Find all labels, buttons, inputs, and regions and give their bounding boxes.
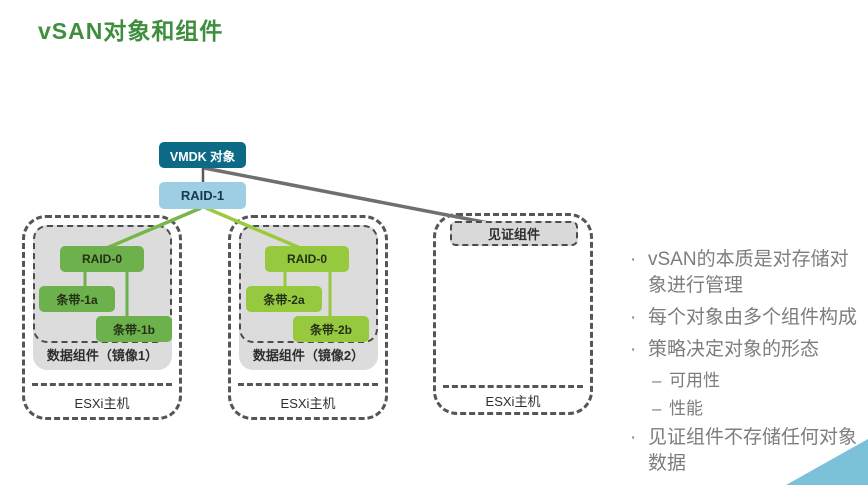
host-divider xyxy=(443,385,583,388)
slide: vSAN对象和组件 VMDK 对象 RAID-1 ESXi主机 数据组件（镜像1… xyxy=(0,0,868,485)
bullet-text: vSAN的本质是对存储对象进行管理 xyxy=(648,247,860,299)
bullet-text: 每个对象由多个组件构成 xyxy=(648,305,857,331)
list-item: · vSAN的本质是对存储对象进行管理 xyxy=(630,247,860,299)
bullet-text: 可用性 xyxy=(669,369,720,393)
bullet-marker: · xyxy=(630,337,648,363)
stripe-1a-node: 条带-1a xyxy=(39,286,115,312)
stripe-2a-node: 条带-2a xyxy=(246,286,322,312)
list-item: · 每个对象由多个组件构成 xyxy=(630,305,860,331)
stripe-2b-node: 条带-2b xyxy=(293,316,369,342)
dash-marker: – xyxy=(652,369,669,393)
raid0-node-mirror-2: RAID-0 xyxy=(265,246,349,272)
vmdk-object-node: VMDK 对象 xyxy=(159,142,246,168)
mirror-2-label: 数据组件（镜像2） xyxy=(239,345,378,364)
stripe-1b-node: 条带-1b xyxy=(96,316,172,342)
page-title: vSAN对象和组件 xyxy=(38,12,223,46)
host-divider xyxy=(238,383,378,386)
bullet-marker: · xyxy=(630,425,648,477)
esxi-host-label: ESXi主机 xyxy=(436,391,590,410)
triangle-shape xyxy=(786,439,868,485)
raid0-node-mirror-1: RAID-0 xyxy=(60,246,144,272)
esxi-host-label: ESXi主机 xyxy=(231,393,385,412)
dash-marker: – xyxy=(652,397,669,421)
raid1-node: RAID-1 xyxy=(159,182,246,209)
bullet-marker: · xyxy=(630,247,648,299)
bullet-marker: · xyxy=(630,305,648,331)
list-subitem: – 性能 xyxy=(652,397,860,421)
host-divider xyxy=(32,383,172,386)
list-item: · 策略决定对象的形态 xyxy=(630,337,860,363)
list-subitem: – 可用性 xyxy=(652,369,860,393)
corner-triangle xyxy=(786,439,868,485)
esxi-host-label: ESXi主机 xyxy=(25,393,179,412)
mirror-1-label: 数据组件（镜像1） xyxy=(33,345,172,364)
bullet-text: 性能 xyxy=(669,397,703,421)
witness-component-node: 见证组件 xyxy=(450,221,578,246)
bullet-text: 策略决定对象的形态 xyxy=(648,337,819,363)
